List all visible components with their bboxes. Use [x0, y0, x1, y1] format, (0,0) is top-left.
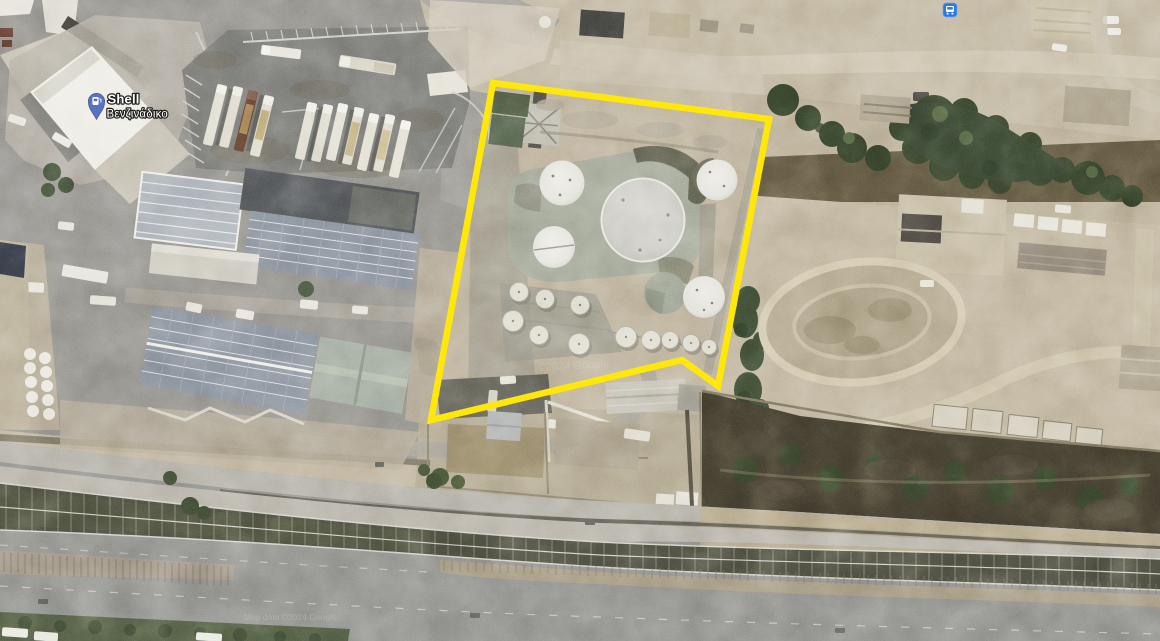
svg-text:Βενζινάδικο: Βενζινάδικο	[107, 109, 169, 121]
svg-text:Map data ©2024 Google: Map data ©2024 Google	[244, 612, 337, 622]
svg-text:Shell: Shell	[108, 92, 140, 107]
